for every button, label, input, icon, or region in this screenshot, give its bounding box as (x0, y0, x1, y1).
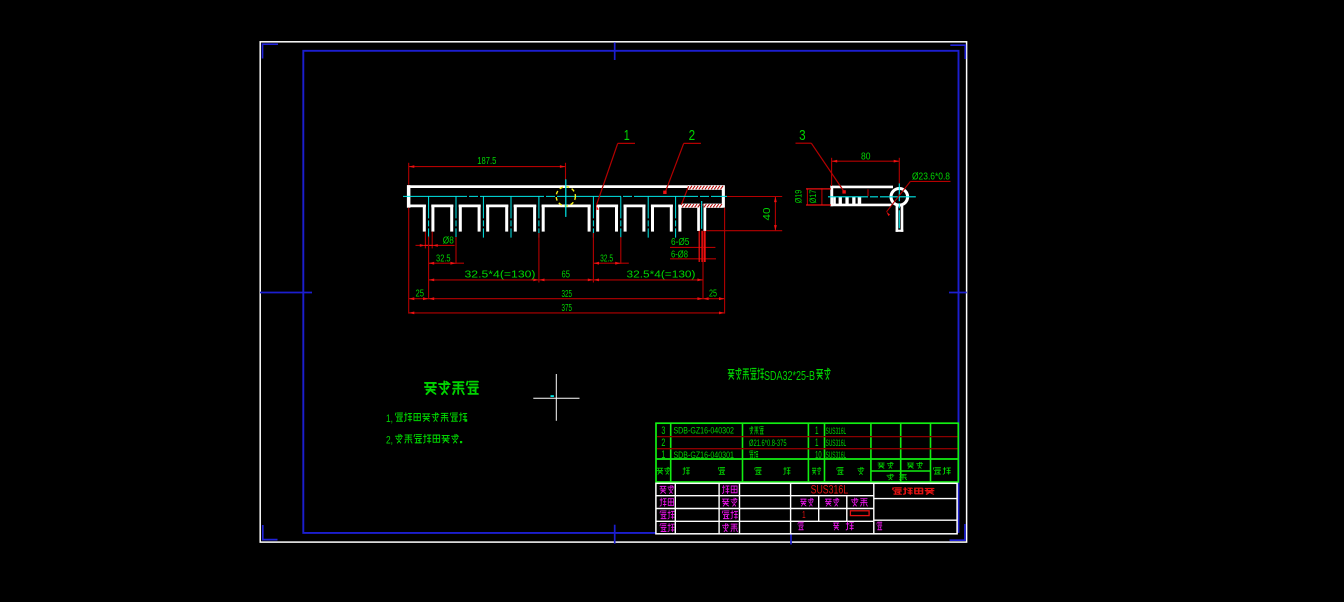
svg-text:SDA32*25-B: SDA32*25-B (764, 369, 815, 383)
svg-text:40: 40 (762, 207, 773, 221)
svg-text:1: 1 (661, 449, 665, 461)
svg-text:32.5*4(=130): 32.5*4(=130) (627, 270, 696, 281)
svg-text:2,: 2, (386, 434, 393, 446)
svg-text:1: 1 (815, 425, 819, 437)
svg-text:32.5: 32.5 (436, 253, 451, 264)
svg-text:Ø21.6*0.8-375: Ø21.6*0.8-375 (749, 438, 787, 448)
svg-text:2: 2 (689, 127, 696, 144)
svg-text:SUS316L: SUS316L (811, 484, 849, 496)
svg-text:187.5: 187.5 (477, 156, 496, 167)
svg-text:25: 25 (709, 289, 717, 300)
svg-text:SUS316L: SUS316L (826, 450, 847, 460)
svg-text:SDB-GZ16-040301: SDB-GZ16-040301 (673, 450, 734, 460)
svg-text:375: 375 (562, 303, 573, 314)
svg-text:32.5: 32.5 (600, 253, 613, 264)
svg-text:6-Ø5: 6-Ø5 (671, 237, 690, 248)
svg-text:1: 1 (624, 127, 630, 144)
svg-text:325: 325 (562, 289, 573, 300)
svg-text:80: 80 (861, 151, 871, 162)
svg-text:32.5*4(=130): 32.5*4(=130) (465, 270, 536, 281)
svg-text:Ø8: Ø8 (443, 236, 454, 247)
svg-text:SDB-GZ16-040302: SDB-GZ16-040302 (673, 426, 734, 436)
svg-text:1: 1 (815, 437, 819, 449)
svg-text:Ø17: Ø17 (808, 190, 818, 204)
svg-text:1: 1 (802, 509, 806, 521)
svg-text:3: 3 (799, 127, 806, 144)
svg-text:SUS316L: SUS316L (826, 438, 847, 448)
svg-text:65: 65 (561, 270, 570, 281)
svg-text:1,: 1, (386, 413, 393, 425)
svg-text:2: 2 (661, 437, 665, 449)
svg-text:10: 10 (815, 450, 822, 461)
svg-text:Ø19: Ø19 (794, 190, 804, 204)
svg-text:25: 25 (416, 289, 425, 300)
svg-text:SUS316L: SUS316L (826, 426, 847, 436)
svg-text:3: 3 (661, 425, 665, 437)
